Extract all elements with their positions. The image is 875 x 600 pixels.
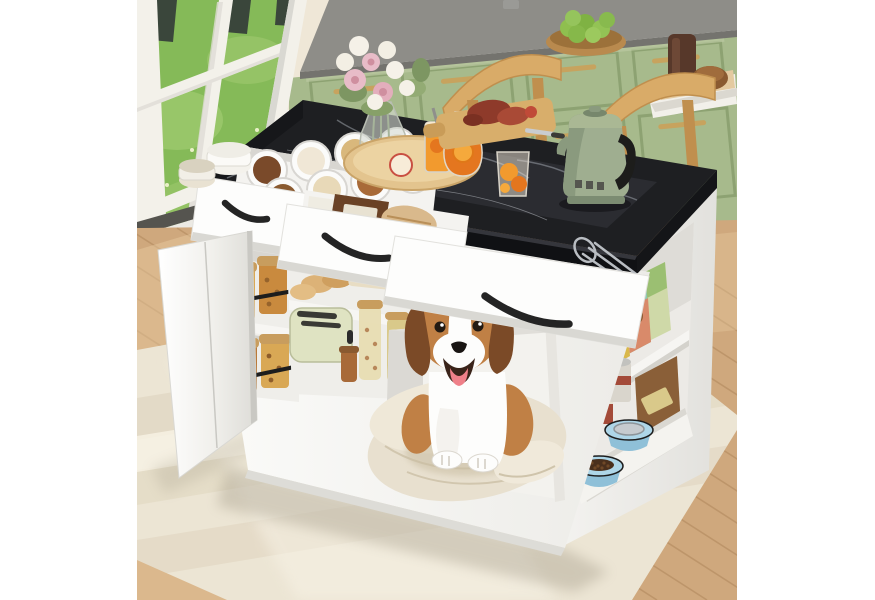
product-photo bbox=[137, 0, 737, 600]
product-photo-stage bbox=[0, 0, 875, 600]
candle bbox=[503, 0, 519, 9]
orange-cocktail-glass bbox=[497, 152, 529, 196]
apple-half bbox=[390, 154, 412, 176]
water-bowl bbox=[605, 420, 653, 451]
